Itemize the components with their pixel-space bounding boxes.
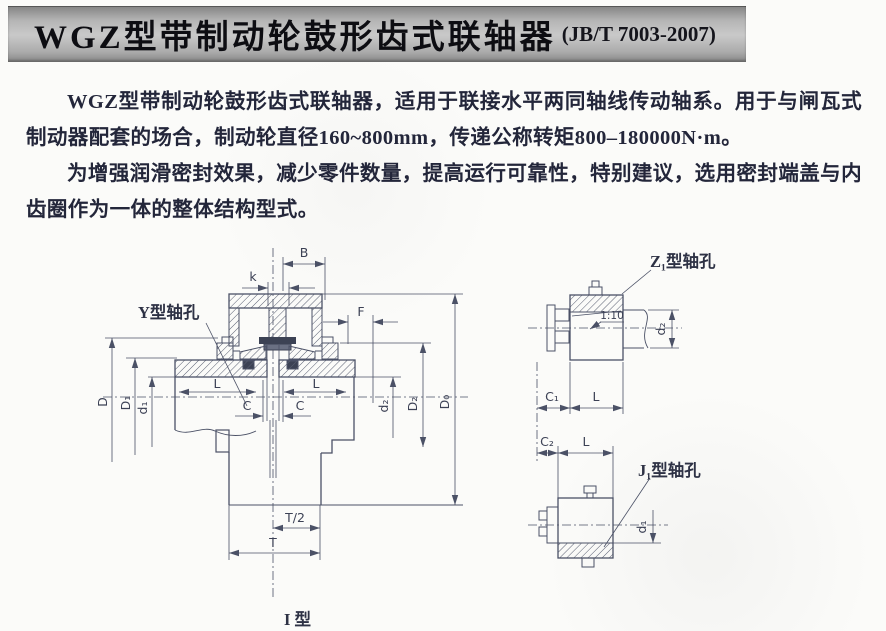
hub-section — [148, 345, 401, 478]
dim-label-T: T — [268, 535, 277, 550]
j1-dim-label-d1: d₁ — [634, 521, 649, 534]
j1-dim-label-L: L — [583, 434, 590, 449]
dim-T — [229, 505, 320, 560]
dim-label-D0: D₀ — [437, 395, 452, 410]
j1-dims — [537, 446, 613, 498]
z1-dims — [537, 362, 623, 414]
j1-hole-callout: J₁型轴孔 — [638, 460, 701, 480]
dim-label-D2: D₂ — [405, 397, 420, 412]
scanned-document-page: WGZ型带制动轮鼓形齿式联轴器 (JB/T 7003-2007) WGZ型带制动… — [0, 0, 886, 631]
z1-leader-line — [622, 270, 651, 294]
dim-label-d1: d₁ — [135, 402, 150, 415]
lower-exterior-outline — [175, 377, 463, 505]
dim-label-D1-left: D₁ — [118, 396, 133, 411]
dim-label-L-left: L — [214, 376, 221, 391]
dim-label-D: D — [95, 397, 110, 407]
coupling-technical-drawing: Y型轴孔 B k F D D₁ d₁ d₂ D₂ D₀ L L C C T/2 … — [0, 0, 886, 631]
dim-label-C-left: C — [243, 398, 252, 413]
z1-dim-label-L: L — [593, 389, 600, 404]
dim-label-T-half: T/2 — [284, 510, 305, 525]
main-section-view — [103, 248, 468, 600]
z1-dim-label-C1: C₁ — [545, 389, 559, 404]
j1-leader-line — [604, 478, 650, 547]
z1-taper-label: 1:10 — [600, 310, 624, 322]
z1-hole-callout: Z₁型轴孔 — [650, 251, 716, 271]
z1-dim-label-d2: d₂ — [653, 323, 668, 336]
dim-label-B: B — [300, 245, 309, 260]
figure-caption: I 型 — [284, 609, 312, 629]
dim-label-L-right: L — [313, 376, 320, 391]
dim-label-k: k — [249, 269, 257, 284]
dim-label-d2: d₂ — [376, 400, 391, 413]
dim-label-C-right: C — [296, 398, 305, 413]
dim-L-C — [179, 380, 346, 422]
y-hole-callout: Y型轴孔 — [138, 302, 200, 322]
j1-dim-label-C2: C₂ — [540, 434, 554, 449]
dim-label-F: F — [357, 304, 364, 319]
